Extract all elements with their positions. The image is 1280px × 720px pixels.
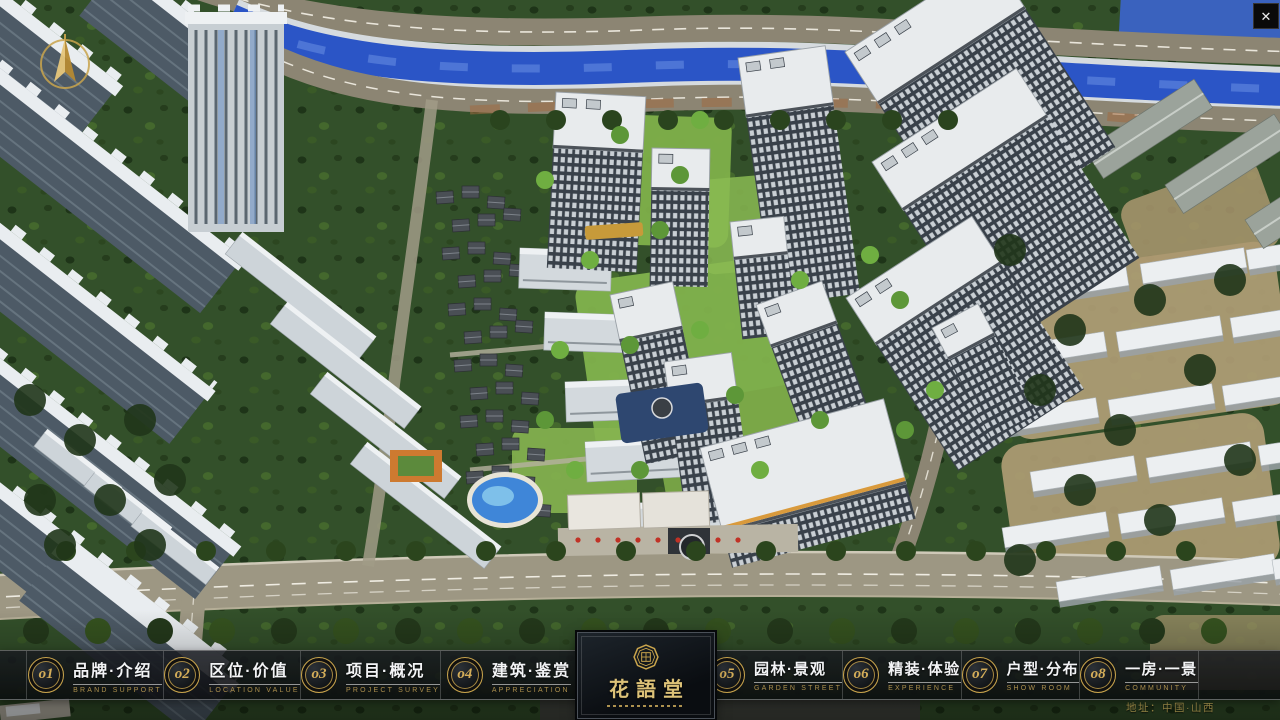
nav-item-title: 一房·一景 — [1125, 658, 1198, 679]
nav-item-o2[interactable]: o2区位·价值LOCATION VALUE — [164, 651, 301, 699]
nav-item-o1[interactable]: o1品牌·介绍BRAND SUPPORT — [26, 651, 164, 699]
nav-item-o5[interactable]: o5园林·景观GARDEN STREET — [708, 651, 843, 699]
nav-item-title: 园林·景观 — [754, 658, 827, 679]
nav-group-right: o5园林·景观GARDEN STREETo6精装·体验EXPERIENCEo7户… — [708, 651, 1138, 699]
masterplan-render — [0, 0, 1280, 720]
nav-item-number-badge: o3 — [301, 657, 337, 693]
nav-item-subtitle: LOCATION VALUE — [209, 687, 299, 694]
nav-item-o3[interactable]: o3项目·概况PROJECT SURVEY — [301, 651, 441, 699]
presentation-window: ✕ o1品牌·介绍BRAND SUPPORTo2区位·价值LOCATION VA… — [0, 0, 1280, 720]
nav-item-rule — [754, 682, 842, 683]
nav-item-o4[interactable]: o4建筑·鉴赏APPRECIATION — [441, 651, 578, 699]
nav-item-subtitle: EXPERIENCE — [888, 685, 955, 692]
nav-item-title: 精装·体验 — [888, 658, 961, 679]
nav-item-subtitle: COMMUNITY — [1125, 685, 1188, 692]
nav-item-subtitle: GARDEN STREET — [754, 685, 842, 692]
close-button[interactable]: ✕ — [1253, 3, 1279, 29]
logo-seal-icon — [633, 644, 659, 670]
project-logo-title: 花語堂 — [602, 673, 690, 702]
project-logo-button[interactable]: 花語堂 — [577, 632, 715, 719]
nav-item-o8[interactable]: o8一房·一景COMMUNITY — [1080, 651, 1199, 699]
nav-item-title: 项目·概况 — [346, 657, 425, 681]
nav-item-number-badge: o8 — [1080, 657, 1116, 693]
nav-item-title: 建筑·鉴赏 — [492, 657, 571, 681]
nav-item-title: 户型·分布 — [1007, 658, 1080, 679]
sandtable-view[interactable] — [0, 0, 1280, 720]
nav-group-left: o1品牌·介绍BRAND SUPPORTo2区位·价值LOCATION VALU… — [26, 651, 578, 699]
project-address: 地址：中国·山西 — [1126, 700, 1215, 715]
nav-item-rule — [73, 684, 162, 685]
nav-item-title: 区位·价值 — [209, 657, 288, 681]
nav-item-rule — [492, 684, 571, 685]
nav-item-number-badge: o4 — [447, 657, 483, 693]
nav-item-subtitle: APPRECIATION — [492, 687, 570, 694]
nav-item-title: 品牌·介绍 — [73, 657, 152, 681]
nav-item-subtitle: PROJECT SURVEY — [346, 687, 440, 694]
nav-item-o7[interactable]: o7户型·分布SHOW ROOM — [962, 651, 1081, 699]
nav-item-rule — [1007, 682, 1080, 683]
nav-item-subtitle: BRAND SUPPORT — [73, 687, 162, 694]
nav-item-rule — [888, 682, 961, 683]
nav-item-subtitle: SHOW ROOM — [1007, 685, 1072, 692]
nav-item-number-badge: o6 — [843, 657, 879, 693]
nav-item-number-badge: o1 — [28, 657, 64, 693]
nav-item-rule — [209, 684, 299, 685]
nav-item-number-badge: o2 — [164, 657, 200, 693]
nav-item-number-badge: o7 — [962, 657, 998, 693]
compass-north-icon — [36, 32, 96, 94]
nav-item-rule — [346, 684, 440, 685]
logo-caption-rule — [607, 705, 685, 707]
nav-item-o6[interactable]: o6精装·体验EXPERIENCE — [843, 651, 962, 699]
nav-item-rule — [1125, 682, 1198, 683]
